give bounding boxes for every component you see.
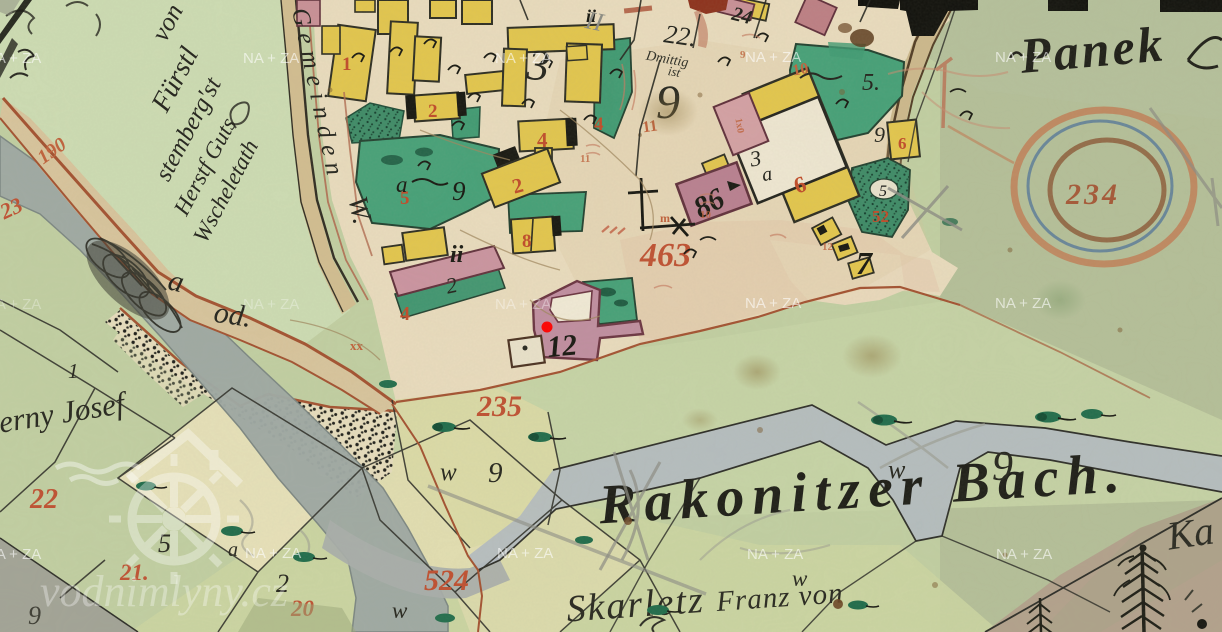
svg-text:NA + ZA: NA + ZA bbox=[497, 545, 553, 562]
svg-text:NA + ZA: NA + ZA bbox=[495, 50, 551, 67]
svg-text:NA + ZA: NA + ZA bbox=[495, 296, 551, 313]
svg-text:vodnimlyny.cz: vodnimlyny.cz bbox=[40, 567, 288, 616]
svg-text:NA + ZA: NA + ZA bbox=[996, 546, 1052, 563]
svg-text:NA + ZA: NA + ZA bbox=[243, 50, 299, 67]
svg-text:NA + ZA: NA + ZA bbox=[0, 296, 41, 313]
svg-text:NA + ZA: NA + ZA bbox=[745, 295, 801, 312]
svg-text:NA + ZA: NA + ZA bbox=[995, 49, 1051, 66]
svg-text:NA + ZA: NA + ZA bbox=[243, 296, 299, 313]
svg-text:NA + ZA: NA + ZA bbox=[747, 546, 803, 563]
svg-text:NA + ZA: NA + ZA bbox=[745, 49, 801, 66]
svg-text:NA + ZA: NA + ZA bbox=[0, 50, 41, 67]
svg-text:NA + ZA: NA + ZA bbox=[0, 546, 41, 563]
svg-text:NA + ZA: NA + ZA bbox=[995, 295, 1051, 312]
svg-text:NA + ZA: NA + ZA bbox=[245, 545, 301, 562]
